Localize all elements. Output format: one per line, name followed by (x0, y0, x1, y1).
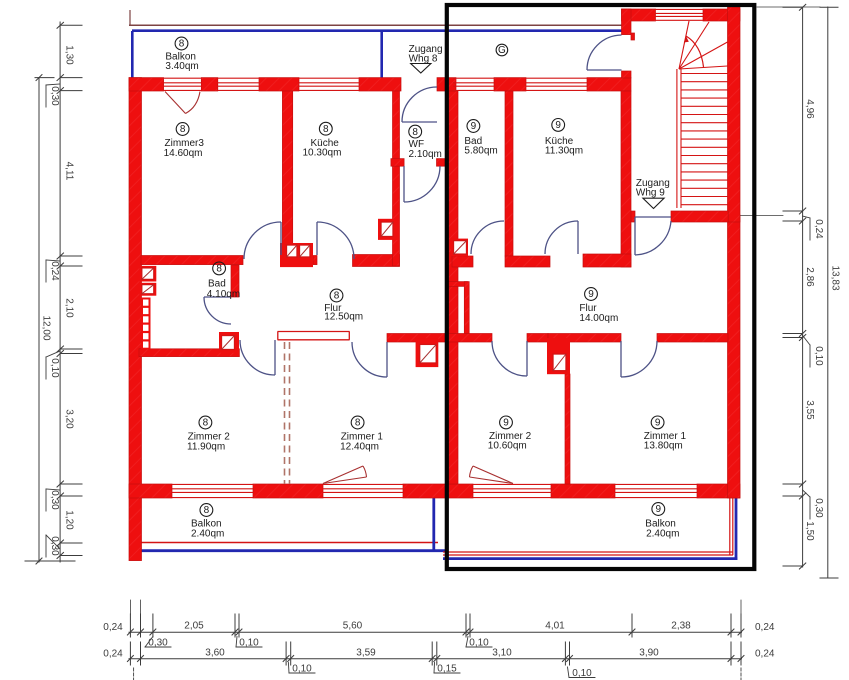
svg-text:4,01: 4,01 (545, 621, 565, 632)
svg-text:8: 8 (203, 418, 209, 429)
svg-text:4,96: 4,96 (804, 99, 815, 119)
svg-text:5.80qm: 5.80qm (464, 146, 497, 157)
svg-text:0,24: 0,24 (103, 622, 123, 633)
svg-text:8: 8 (204, 505, 210, 516)
svg-text:13.80qm: 13.80qm (644, 441, 683, 452)
svg-text:2,86: 2,86 (804, 267, 815, 287)
svg-text:2.40qm: 2.40qm (646, 528, 679, 539)
svg-text:8: 8 (334, 291, 340, 302)
svg-text:12.40qm: 12.40qm (340, 442, 379, 453)
svg-text:8: 8 (355, 418, 361, 429)
svg-text:8: 8 (323, 124, 329, 135)
svg-text:5,60: 5,60 (343, 621, 363, 632)
svg-text:9: 9 (656, 504, 662, 515)
svg-text:8: 8 (412, 127, 418, 138)
svg-text:2,38: 2,38 (671, 621, 691, 632)
svg-text:9: 9 (655, 418, 661, 429)
svg-text:2,10: 2,10 (64, 298, 75, 318)
svg-text:Whg 8: Whg 8 (409, 54, 438, 65)
svg-text:4,11: 4,11 (64, 162, 75, 181)
svg-text:0,24: 0,24 (49, 261, 60, 281)
svg-text:9: 9 (471, 121, 477, 132)
svg-text:3,90: 3,90 (639, 648, 659, 659)
svg-text:0,30: 0,30 (813, 498, 824, 518)
svg-text:Whg 9: Whg 9 (636, 188, 665, 199)
svg-text:3,10: 3,10 (492, 648, 512, 659)
svg-text:0,24: 0,24 (755, 622, 775, 633)
svg-text:14.60qm: 14.60qm (164, 148, 203, 159)
svg-text:4.10qm: 4.10qm (207, 289, 240, 300)
svg-text:0,30: 0,30 (49, 86, 60, 106)
svg-text:3,55: 3,55 (804, 400, 815, 420)
svg-text:1,20: 1,20 (64, 510, 75, 530)
svg-text:0,10: 0,10 (49, 358, 60, 378)
svg-text:3,59: 3,59 (356, 648, 376, 659)
svg-text:12,00: 12,00 (41, 315, 52, 340)
svg-text:11.30qm: 11.30qm (545, 146, 583, 157)
svg-text:13,83: 13,83 (830, 265, 841, 290)
svg-text:0,30: 0,30 (49, 490, 60, 510)
svg-text:1,30: 1,30 (64, 45, 75, 65)
svg-text:8: 8 (180, 124, 186, 135)
svg-text:9: 9 (503, 418, 509, 429)
svg-text:10.30qm: 10.30qm (303, 148, 342, 159)
svg-text:G: G (498, 45, 506, 56)
svg-text:14.00qm: 14.00qm (579, 313, 618, 324)
svg-text:3.40qm: 3.40qm (165, 61, 198, 72)
svg-text:0,24: 0,24 (813, 219, 824, 239)
svg-text:11.90qm: 11.90qm (187, 442, 225, 453)
svg-text:1,50: 1,50 (804, 521, 815, 541)
svg-text:0,10: 0,10 (813, 346, 824, 366)
svg-text:Bad: Bad (208, 279, 226, 290)
svg-text:0,24: 0,24 (755, 649, 775, 660)
svg-text:9: 9 (555, 120, 561, 131)
svg-text:10.60qm: 10.60qm (488, 441, 527, 452)
svg-text:2.10qm: 2.10qm (409, 149, 442, 160)
svg-text:8: 8 (216, 264, 222, 275)
svg-text:0,24: 0,24 (103, 649, 123, 660)
svg-text:9: 9 (588, 289, 594, 300)
svg-text:2,05: 2,05 (184, 621, 204, 632)
svg-text:3,60: 3,60 (205, 648, 225, 659)
svg-text:3,20: 3,20 (64, 409, 75, 429)
svg-text:2.40qm: 2.40qm (191, 529, 224, 540)
svg-text:8: 8 (179, 39, 185, 50)
svg-text:12.50qm: 12.50qm (324, 312, 363, 323)
